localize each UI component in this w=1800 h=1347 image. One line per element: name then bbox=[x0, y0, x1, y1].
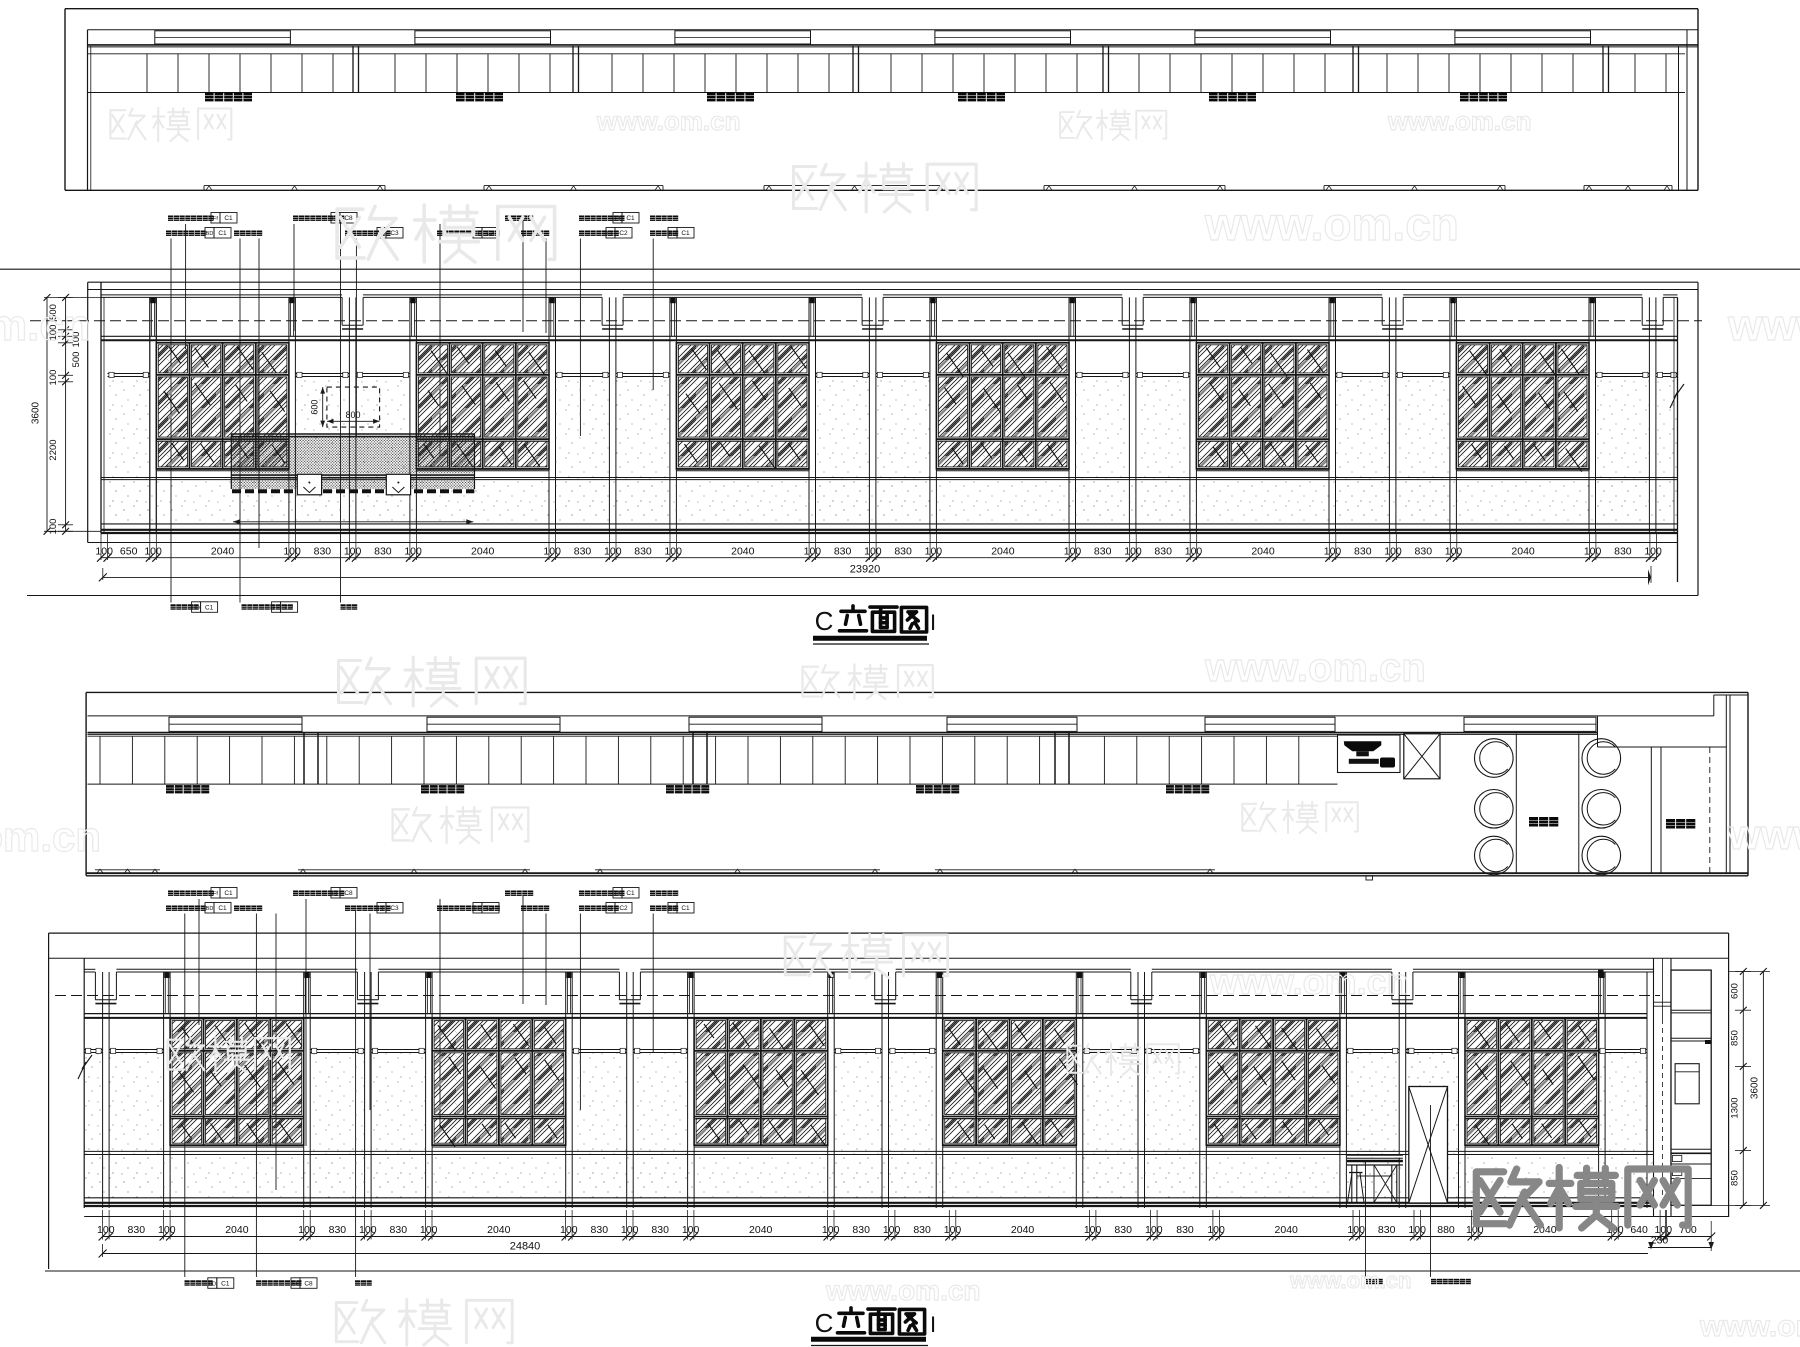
svg-text:FF: FF bbox=[378, 906, 385, 912]
svg-text:Ff: Ff bbox=[615, 891, 620, 897]
svg-text:C1: C1 bbox=[205, 604, 214, 611]
svg-text:n.om.cn: n.om.cn bbox=[0, 813, 101, 860]
svg-text:C1: C1 bbox=[218, 905, 227, 912]
svg-text:100: 100 bbox=[95, 545, 113, 557]
svg-text:23920: 23920 bbox=[850, 564, 881, 576]
svg-text:FF: FF bbox=[607, 906, 614, 912]
svg-text:I: I bbox=[930, 610, 936, 635]
svg-text:C: C bbox=[815, 606, 834, 636]
svg-text:n.om.cn: n.om.cn bbox=[0, 301, 91, 350]
svg-text:100: 100 bbox=[48, 519, 59, 535]
svg-text:BD: BD bbox=[669, 231, 677, 237]
svg-text:600: 600 bbox=[310, 400, 320, 415]
svg-text:100: 100 bbox=[883, 1224, 901, 1236]
svg-text:24840: 24840 bbox=[510, 1241, 541, 1253]
svg-text:2040: 2040 bbox=[731, 545, 755, 557]
svg-text:BD: BD bbox=[206, 231, 214, 237]
svg-text:Ff: Ff bbox=[213, 891, 218, 897]
svg-text:830: 830 bbox=[894, 545, 912, 557]
svg-text:C8: C8 bbox=[344, 215, 353, 222]
svg-text:100: 100 bbox=[144, 545, 162, 557]
svg-text:2040: 2040 bbox=[225, 1224, 249, 1236]
svg-text:100: 100 bbox=[682, 1224, 700, 1236]
svg-text:Ff: Ff bbox=[213, 216, 218, 222]
svg-text:830: 830 bbox=[1114, 1224, 1132, 1236]
svg-text:500: 500 bbox=[71, 352, 82, 368]
svg-text:C1: C1 bbox=[221, 1280, 230, 1287]
svg-text:C2: C2 bbox=[619, 230, 628, 237]
svg-text:100: 100 bbox=[925, 545, 943, 557]
svg-text:100: 100 bbox=[1064, 545, 1082, 557]
svg-text:2040: 2040 bbox=[487, 1224, 511, 1236]
svg-text:C1: C1 bbox=[626, 215, 635, 222]
svg-text:100: 100 bbox=[560, 1224, 578, 1236]
svg-text:www.om.cn: www.om.cn bbox=[825, 1275, 981, 1306]
svg-text:2040: 2040 bbox=[991, 545, 1015, 557]
svg-text:C3: C3 bbox=[390, 230, 399, 237]
svg-text:C2: C2 bbox=[285, 604, 294, 611]
svg-text:2040: 2040 bbox=[211, 545, 235, 557]
svg-text:100: 100 bbox=[1324, 545, 1342, 557]
svg-text:830: 830 bbox=[390, 1224, 408, 1236]
svg-text:830: 830 bbox=[591, 1224, 609, 1236]
svg-text:100: 100 bbox=[283, 545, 301, 557]
svg-text:www.om.cn: www.om.cn bbox=[1209, 961, 1409, 1002]
svg-text:650: 650 bbox=[120, 545, 138, 557]
svg-text:3600: 3600 bbox=[1750, 1076, 1761, 1099]
svg-text:C8: C8 bbox=[304, 1280, 313, 1287]
svg-text:830: 830 bbox=[651, 1224, 669, 1236]
svg-text:100: 100 bbox=[1384, 545, 1402, 557]
svg-text:2040: 2040 bbox=[1251, 545, 1275, 557]
svg-text:100: 100 bbox=[1185, 545, 1203, 557]
svg-text:100: 100 bbox=[822, 1224, 840, 1236]
svg-text:I: I bbox=[930, 1312, 936, 1337]
svg-text:850: 850 bbox=[1730, 1030, 1741, 1046]
svg-text:2040: 2040 bbox=[471, 545, 495, 557]
svg-text:830: 830 bbox=[1176, 1224, 1194, 1236]
svg-text:100: 100 bbox=[1347, 1224, 1365, 1236]
svg-text:100: 100 bbox=[1124, 545, 1142, 557]
svg-text:2040: 2040 bbox=[1011, 1224, 1035, 1236]
svg-text:www.o: www.o bbox=[1727, 301, 1800, 350]
svg-text:100: 100 bbox=[298, 1224, 316, 1236]
svg-text:830: 830 bbox=[913, 1224, 931, 1236]
svg-text:830: 830 bbox=[374, 545, 392, 557]
svg-text:600: 600 bbox=[1730, 983, 1741, 999]
svg-text:BD: BD bbox=[669, 906, 677, 912]
svg-text:2040: 2040 bbox=[749, 1224, 773, 1236]
svg-text:FF: FF bbox=[332, 891, 339, 897]
svg-text:100: 100 bbox=[404, 545, 422, 557]
svg-text:100: 100 bbox=[1408, 1224, 1426, 1236]
svg-text:C3: C3 bbox=[486, 230, 495, 237]
svg-text:C3: C3 bbox=[390, 905, 399, 912]
svg-text:C1: C1 bbox=[681, 230, 690, 237]
svg-text:830: 830 bbox=[1614, 545, 1632, 557]
svg-text:www.om.cn: www.om.cn bbox=[596, 106, 741, 136]
svg-text:1300: 1300 bbox=[1730, 1097, 1741, 1118]
svg-text:C1: C1 bbox=[681, 905, 690, 912]
svg-text:C1: C1 bbox=[218, 230, 227, 237]
svg-text:FF: FF bbox=[273, 605, 280, 611]
svg-text:BD: BD bbox=[206, 906, 214, 912]
svg-text:880: 880 bbox=[1437, 1224, 1455, 1236]
svg-text:830: 830 bbox=[128, 1224, 146, 1236]
svg-text:830: 830 bbox=[1354, 545, 1372, 557]
svg-text:100: 100 bbox=[864, 545, 882, 557]
svg-text:100: 100 bbox=[97, 1224, 115, 1236]
svg-text:www.om.cn: www.om.cn bbox=[1204, 646, 1426, 690]
svg-text:www.om.cn: www.om.cn bbox=[1289, 1268, 1411, 1293]
svg-text:100: 100 bbox=[344, 545, 362, 557]
svg-text:C8: C8 bbox=[344, 890, 353, 897]
svg-text:C3: C3 bbox=[486, 905, 495, 912]
svg-text:BD: BD bbox=[192, 605, 200, 611]
svg-text:C1: C1 bbox=[224, 890, 233, 897]
svg-text:100: 100 bbox=[1445, 545, 1463, 557]
svg-text:FF: FF bbox=[607, 231, 614, 237]
svg-text:BD: BD bbox=[208, 1281, 216, 1287]
svg-text:2200: 2200 bbox=[48, 439, 59, 460]
svg-text:100: 100 bbox=[1207, 1224, 1225, 1236]
svg-text:C2: C2 bbox=[619, 905, 628, 912]
svg-text:830: 830 bbox=[1094, 545, 1112, 557]
svg-text:C: C bbox=[815, 1308, 834, 1338]
svg-text:830: 830 bbox=[1154, 545, 1172, 557]
svg-text:830: 830 bbox=[634, 545, 652, 557]
svg-text:2040: 2040 bbox=[1275, 1224, 1299, 1236]
svg-text:www.o: www.o bbox=[1727, 811, 1800, 858]
svg-text:830: 830 bbox=[834, 545, 852, 557]
svg-text:www.om: www.om bbox=[1699, 1310, 1800, 1343]
svg-text:100: 100 bbox=[543, 545, 561, 557]
svg-text:830: 830 bbox=[329, 1224, 347, 1236]
svg-text:www.om.cn: www.om.cn bbox=[1387, 106, 1532, 136]
svg-text:800: 800 bbox=[345, 410, 360, 420]
svg-text:100: 100 bbox=[48, 370, 59, 386]
svg-text:100: 100 bbox=[158, 1224, 176, 1236]
svg-text:FF: FF bbox=[292, 1281, 299, 1287]
svg-text:100: 100 bbox=[604, 545, 622, 557]
svg-text:100: 100 bbox=[621, 1224, 639, 1236]
svg-text:Ff: Ff bbox=[615, 216, 620, 222]
svg-text:640: 640 bbox=[1630, 1224, 1648, 1236]
svg-text:C1: C1 bbox=[626, 890, 635, 897]
svg-text:830: 830 bbox=[852, 1224, 870, 1236]
svg-text:100: 100 bbox=[804, 545, 822, 557]
svg-text:3600: 3600 bbox=[31, 401, 42, 424]
svg-text:850: 850 bbox=[1730, 1170, 1741, 1186]
svg-text:100: 100 bbox=[944, 1224, 962, 1236]
svg-text:830: 830 bbox=[314, 545, 332, 557]
svg-text:FF: FF bbox=[474, 906, 481, 912]
svg-text:830: 830 bbox=[574, 545, 592, 557]
svg-text:100: 100 bbox=[1145, 1224, 1163, 1236]
svg-text:100: 100 bbox=[1084, 1224, 1102, 1236]
svg-text:230: 230 bbox=[1651, 1235, 1669, 1247]
svg-text:100: 100 bbox=[664, 545, 682, 557]
svg-text:100: 100 bbox=[1584, 545, 1602, 557]
svg-text:2040: 2040 bbox=[1511, 545, 1535, 557]
svg-text:100: 100 bbox=[420, 1224, 438, 1236]
svg-text:www.om.cn: www.om.cn bbox=[1204, 198, 1459, 250]
svg-text:830: 830 bbox=[1378, 1224, 1396, 1236]
svg-text:100: 100 bbox=[1644, 545, 1662, 557]
svg-text:830: 830 bbox=[1415, 545, 1433, 557]
svg-text:100: 100 bbox=[359, 1224, 377, 1236]
svg-text:C1: C1 bbox=[224, 215, 233, 222]
